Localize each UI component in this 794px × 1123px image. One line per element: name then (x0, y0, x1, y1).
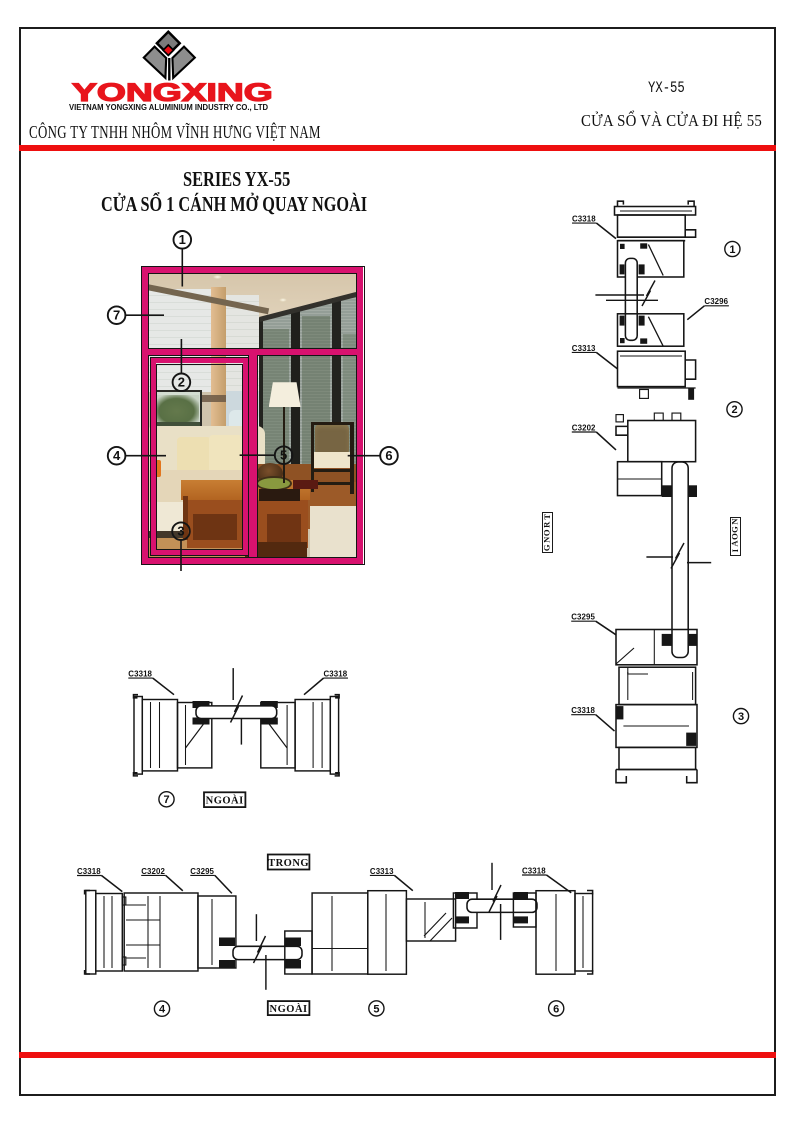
svg-text:C3318: C3318 (77, 867, 101, 876)
svg-text:NGOÀI: NGOÀI (206, 795, 244, 807)
svg-text:7: 7 (163, 794, 169, 806)
svg-text:4: 4 (159, 1004, 166, 1016)
svg-text:C3318: C3318 (324, 670, 348, 679)
svg-text:C3313: C3313 (370, 867, 394, 876)
svg-text:C3313: C3313 (572, 344, 596, 353)
svg-text:C3318: C3318 (522, 866, 546, 875)
svg-text:1: 1 (179, 232, 186, 247)
svg-text:3: 3 (177, 524, 184, 539)
svg-text:C3295: C3295 (190, 867, 214, 876)
svg-text:C3202: C3202 (141, 867, 165, 876)
svg-text:6: 6 (553, 1003, 559, 1015)
svg-text:NGOÀI: NGOÀI (270, 1003, 308, 1015)
svg-text:7: 7 (113, 308, 120, 323)
svg-text:C3295: C3295 (571, 613, 595, 622)
svg-text:4: 4 (113, 448, 121, 463)
svg-text:5: 5 (280, 448, 287, 463)
svg-text:5: 5 (373, 1003, 379, 1015)
svg-text:C3318: C3318 (572, 215, 596, 224)
svg-text:3: 3 (738, 711, 744, 723)
svg-text:1: 1 (729, 244, 735, 256)
svg-text:6: 6 (385, 448, 392, 463)
svg-text:C3296: C3296 (704, 297, 728, 306)
svg-text:2: 2 (178, 375, 185, 390)
svg-text:2: 2 (731, 404, 737, 416)
svg-text:TRONG: TRONG (268, 858, 309, 869)
svg-text:C3202: C3202 (572, 423, 596, 432)
svg-text:C3318: C3318 (571, 706, 595, 715)
svg-text:C3318: C3318 (128, 670, 152, 679)
